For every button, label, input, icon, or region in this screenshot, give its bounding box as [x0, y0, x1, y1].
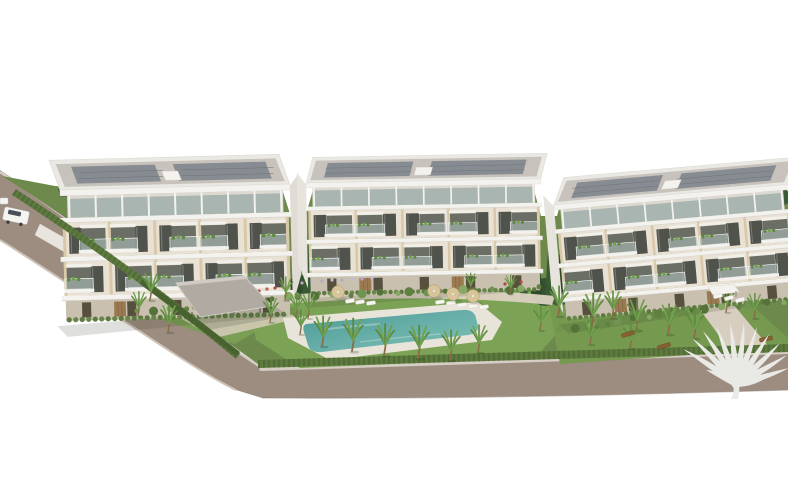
ground-door: [82, 302, 91, 317]
facade-pier: [493, 208, 496, 237]
attic-column: [313, 188, 315, 207]
garden-bush: [557, 326, 562, 331]
garden-bush: [377, 289, 384, 296]
palm-shadow: [588, 344, 595, 346]
palm-shadow: [283, 300, 290, 302]
palm-shadow: [509, 294, 515, 296]
garden-bush: [149, 307, 158, 316]
balcony-slab: [371, 266, 402, 270]
palm-shadow: [166, 332, 174, 334]
balcony-slab: [509, 230, 540, 234]
palm-shadow: [350, 351, 360, 354]
attic-column: [505, 185, 507, 204]
attic-column: [395, 186, 397, 205]
facade-pier: [448, 242, 451, 271]
lavender-flowers: [350, 277, 353, 280]
palm-shadow: [268, 322, 275, 324]
balcony-canopy: [326, 212, 353, 215]
bottom-white-mask: [0, 401, 788, 477]
garden-bush: [349, 293, 354, 298]
palm-shadow: [306, 318, 313, 320]
palm-shadow: [136, 316, 143, 318]
palm-shadow: [416, 358, 426, 361]
lavender-flowers: [310, 280, 313, 283]
facade-pier: [308, 211, 311, 240]
palm-shadow: [382, 355, 391, 358]
palm-shadow: [298, 334, 305, 336]
attic-column: [532, 184, 534, 203]
facade-pier: [537, 207, 540, 236]
garden-bush: [782, 300, 787, 305]
balcony-slab: [494, 264, 525, 268]
lavender-flowers: [330, 278, 333, 281]
garden-bush: [605, 322, 610, 327]
balcony-slab: [448, 231, 479, 235]
attic-column: [423, 186, 425, 205]
attic-column: [368, 187, 370, 206]
umbrella-pole-top: [337, 291, 339, 293]
palm-shadow: [320, 346, 329, 349]
balcony-canopy: [418, 211, 445, 214]
balcony-canopy: [449, 210, 476, 213]
roof-solar-panel: [428, 160, 527, 176]
palm-shadow: [628, 348, 635, 350]
palm-shadow: [538, 330, 545, 332]
red-flowers: [273, 286, 276, 289]
balcony-canopy: [311, 246, 338, 249]
roof-solar-panel: [173, 162, 272, 182]
lavender-flowers: [360, 277, 363, 280]
palm-shadow: [752, 318, 759, 320]
balcony-slab: [309, 267, 340, 271]
palm-shadow: [148, 300, 156, 302]
facade-pier: [355, 243, 358, 272]
umbrella-pole-top: [452, 293, 454, 295]
garden-bush: [269, 296, 274, 301]
palm-shadow: [448, 360, 457, 363]
red-flowers: [503, 282, 506, 285]
garden-bush: [490, 287, 495, 292]
roof-access-box: [414, 167, 433, 175]
garden-bush: [737, 305, 742, 310]
garden-bush: [358, 289, 367, 298]
garden-bush: [459, 285, 468, 294]
rendering-canvas: [0, 0, 788, 477]
lavender-flowers: [340, 278, 343, 281]
red-flowers: [265, 287, 268, 290]
apartment-building-2: [296, 153, 551, 308]
palm-shadow: [666, 334, 675, 337]
balcony-canopy: [511, 209, 538, 212]
balcony-slab: [417, 232, 448, 236]
palm-shadow: [476, 352, 484, 354]
ground-door: [127, 301, 136, 316]
garden-bush: [537, 284, 542, 289]
roof-access-box: [162, 171, 182, 181]
umbrella-pole-top: [472, 295, 474, 297]
parked-car: [0, 198, 8, 204]
ground-door: [373, 278, 382, 291]
lavender-flowers: [370, 276, 373, 279]
balcony-slab: [402, 265, 433, 269]
red-flowers: [519, 280, 522, 283]
garden-bush: [518, 285, 525, 292]
balcony-canopy: [403, 244, 430, 247]
ground-door: [420, 277, 429, 290]
ground-door: [767, 285, 777, 299]
lavender-flowers: [320, 279, 323, 282]
roof-solar-panel: [71, 164, 161, 183]
palm-shadow: [294, 316, 300, 318]
facade-pier: [401, 209, 404, 238]
garden-bush: [396, 291, 401, 296]
balcony-slab: [464, 264, 495, 268]
balcony-canopy: [357, 212, 384, 215]
attic-column: [478, 185, 480, 204]
wood-slat-panel: [114, 301, 126, 316]
garden-bush: [571, 324, 580, 333]
palm-shadow: [724, 312, 731, 314]
balcony-canopy: [496, 242, 523, 245]
attic-column: [341, 187, 343, 206]
balcony-slab: [355, 233, 386, 237]
umbrella-pole-top: [433, 290, 435, 292]
roof-solar-panel: [324, 162, 414, 178]
garden-bush: [763, 299, 770, 306]
facade-pier: [538, 240, 541, 269]
garden-bush: [647, 315, 652, 320]
garden-bush: [718, 303, 725, 310]
balcony-canopy: [465, 243, 492, 246]
palm-shadow: [610, 318, 618, 320]
balcony-slab: [325, 234, 356, 238]
attic-column: [450, 185, 452, 204]
palm-shadow: [556, 316, 565, 319]
balcony-canopy: [373, 245, 400, 248]
scene-svg: [0, 0, 788, 477]
garden-bush: [405, 287, 414, 296]
lavender-flowers: [300, 281, 303, 284]
